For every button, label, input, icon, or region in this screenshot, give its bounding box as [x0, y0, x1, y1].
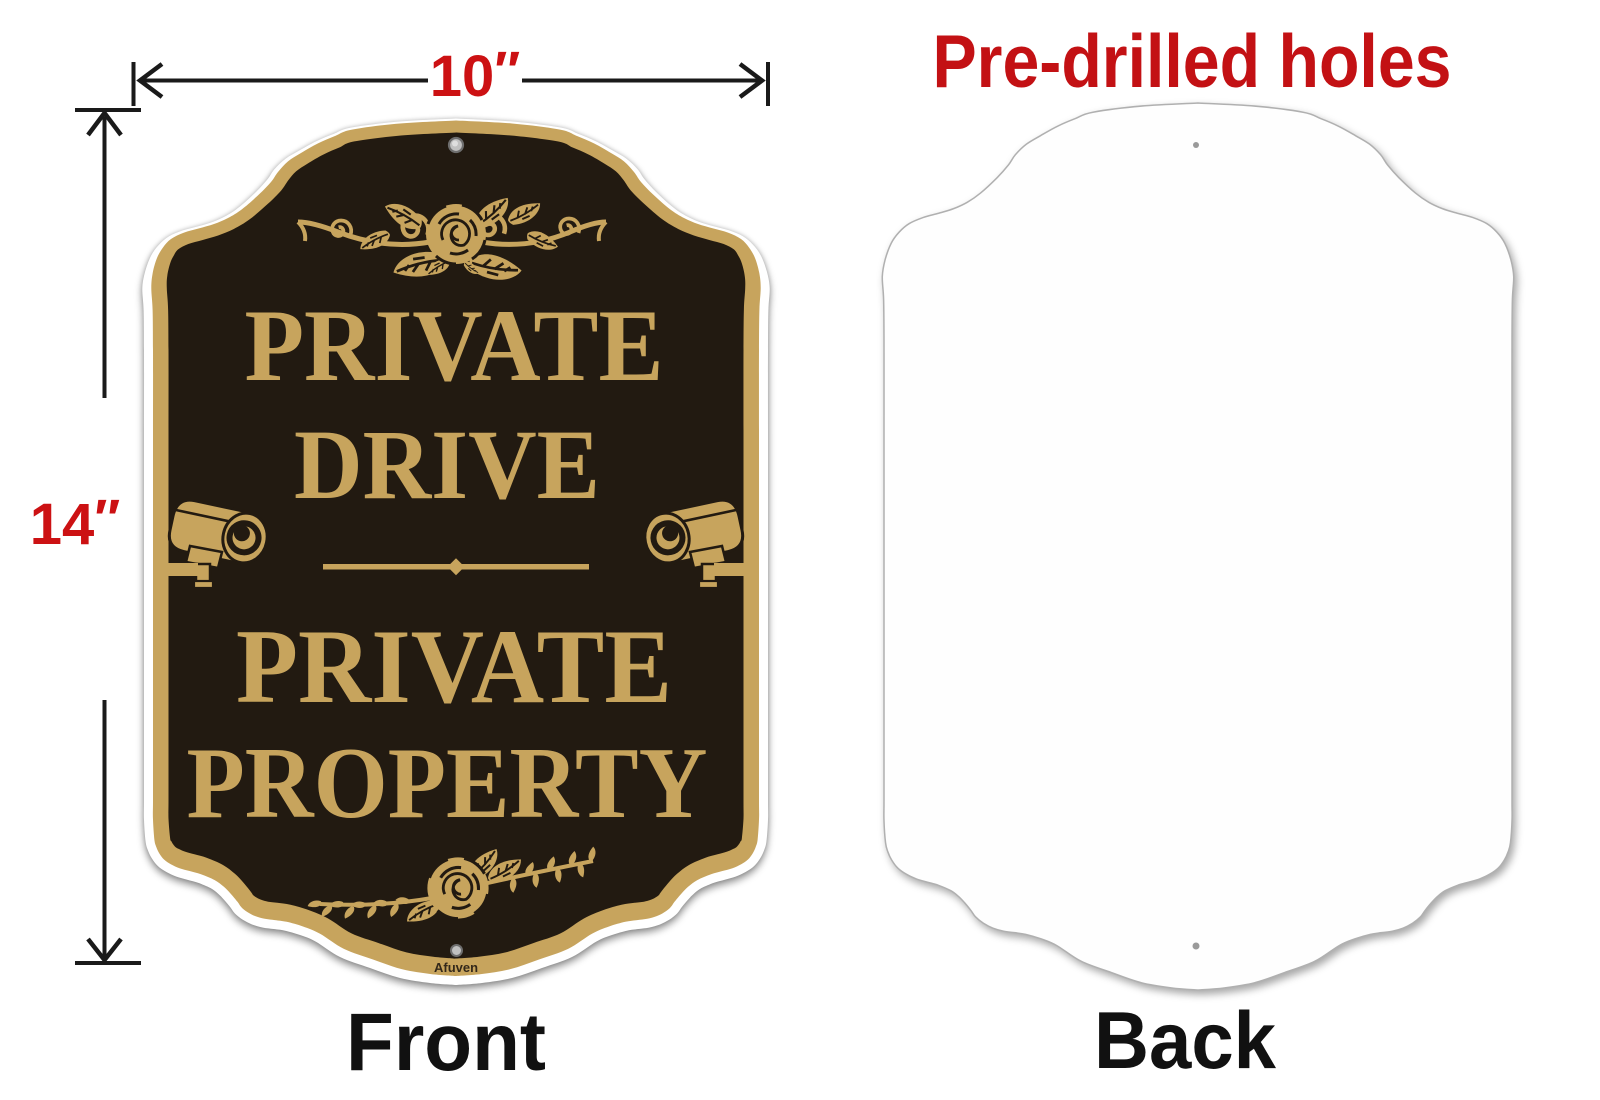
svg-text:Front: Front: [346, 997, 546, 1088]
svg-text:Pre-drilled holes: Pre-drilled holes: [933, 19, 1452, 103]
svg-text:Afuven: Afuven: [434, 960, 478, 975]
svg-text:PRIVATE: PRIVATE: [245, 289, 664, 403]
svg-text:10″: 10″: [430, 41, 520, 109]
svg-text:Back: Back: [1094, 996, 1277, 1086]
svg-text:PRIVATE: PRIVATE: [236, 608, 672, 725]
svg-text:PROPERTY: PROPERTY: [187, 727, 708, 840]
svg-text:DRIVE: DRIVE: [294, 409, 600, 520]
svg-text:14″: 14″: [30, 489, 120, 557]
